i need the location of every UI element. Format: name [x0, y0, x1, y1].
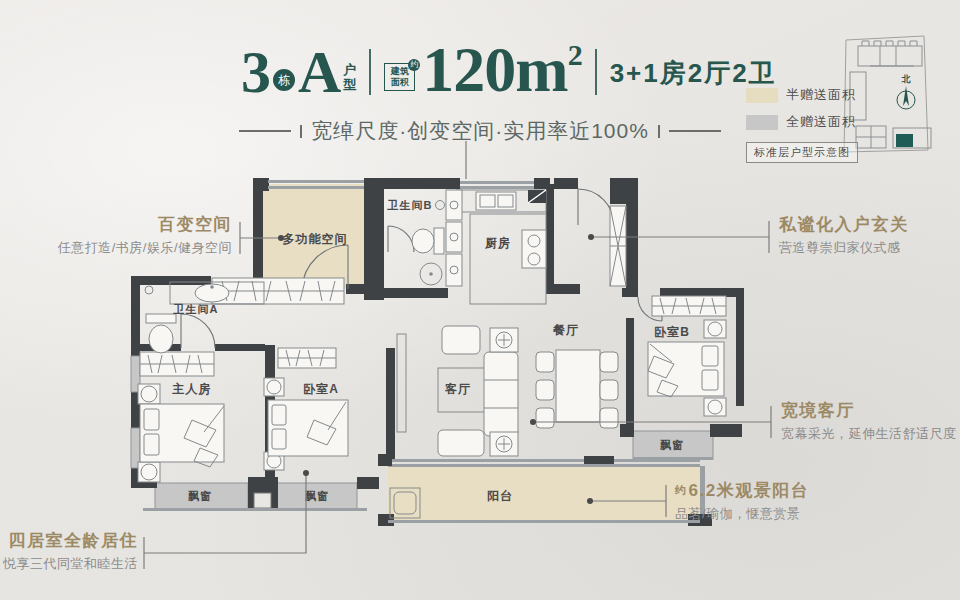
title-divider-2: [595, 49, 597, 95]
full-gift-swatch: [746, 115, 778, 130]
callout-living: 宽境客厅 宽幕采光，延伸生活舒适尺度: [781, 401, 957, 442]
label-master-bedroom: 主人房: [172, 382, 212, 396]
label-bathroom-b: 卫生间B: [387, 199, 433, 211]
title-divider: [369, 49, 371, 95]
unit-letter: A: [298, 45, 340, 100]
label-dining-room: 餐厅: [552, 323, 579, 337]
title-block: 3 栋 A 户 型 建筑 面积 约 120m2 3+1房2厅2卫: [241, 34, 777, 100]
bathroom-b-fixtures: [412, 201, 445, 286]
north-label: 北: [901, 74, 912, 84]
label-bedroom-a: 卧室A: [303, 382, 339, 396]
callout-family: 四居室全龄居住 悦享三代同堂和睦生活: [0, 531, 138, 572]
floorplan-poster: 多功能空间 卫生间B 厨房 卫生间A 主人房 卧室A 客厅 餐厅 卧室B 阳台 …: [0, 0, 960, 600]
area-value: 120m2: [422, 41, 581, 100]
label-bay-window-1: 飘窗: [187, 490, 212, 502]
master-bed: [138, 384, 224, 482]
approx-badge: 约: [408, 59, 420, 71]
label-bay-window-2: 飘窗: [304, 490, 329, 502]
unit-type-label: 户 型: [343, 63, 356, 93]
north-compass: [897, 86, 915, 109]
callout-flex-space: 百变空间 任意打造/书房/娱乐/健身空间: [58, 215, 232, 256]
dining-furniture: [536, 350, 618, 428]
label-bedroom-b: 卧室B: [654, 325, 690, 339]
half-gift-swatch: [746, 88, 778, 103]
callout-balcony: 约6.2米观景阳台 品茗/瑜伽，惬意赏景: [675, 481, 809, 522]
legend-note: 标准层户型示意图: [746, 142, 858, 163]
tagline-text: 宽绰尺度·创变空间·实用率近100%: [311, 117, 649, 145]
legend-full-gift: 全赠送面积: [746, 113, 858, 131]
area-badge: 建筑 面积 约: [384, 63, 415, 92]
label-multi-function: 多功能空间: [283, 232, 348, 246]
label-bay-window-3: 飘窗: [659, 439, 684, 451]
label-living-room: 客厅: [444, 382, 471, 396]
label-balcony: 阳台: [487, 489, 513, 503]
block-number: 3: [241, 45, 270, 100]
legend-half-gift: 半赠送面积: [746, 86, 858, 104]
label-bathroom-a: 卫生间A: [173, 303, 219, 315]
legend: 半赠送面积 全赠送面积 标准层户型示意图: [746, 86, 858, 163]
block-badge: 栋: [273, 69, 295, 91]
callout-entry: 私谧化入户玄关 营造尊崇归家仪式感: [779, 215, 909, 256]
label-kitchen: 厨房: [484, 236, 511, 250]
